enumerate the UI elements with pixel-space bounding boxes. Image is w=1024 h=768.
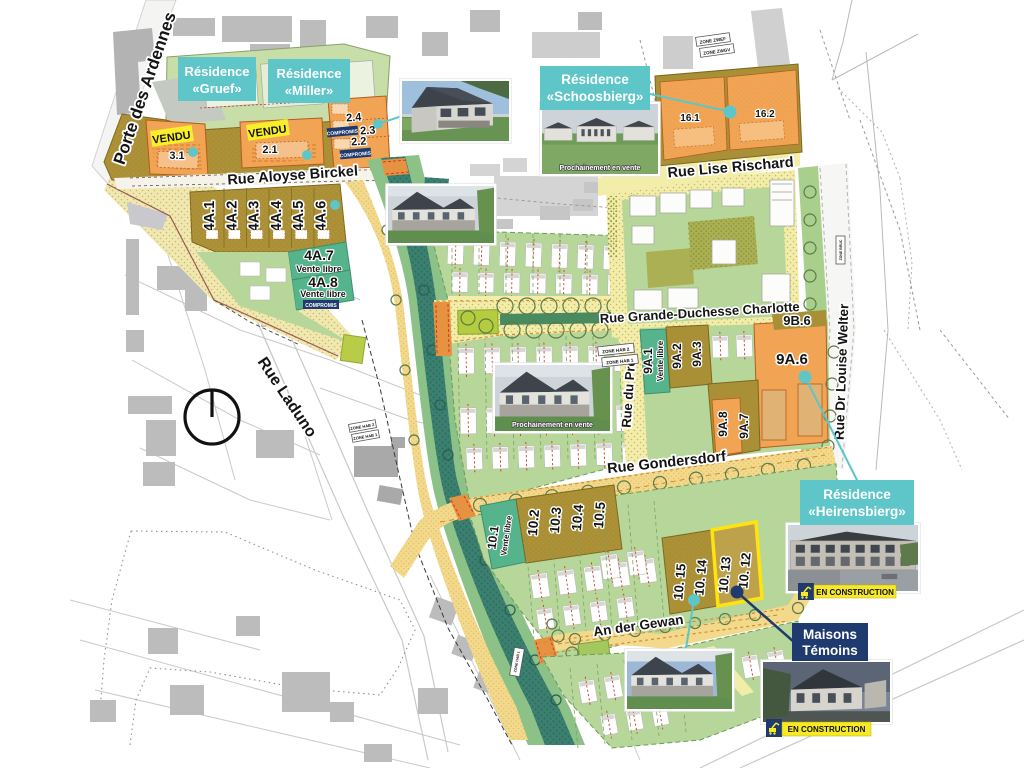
svg-text:4A.6: 4A.6 bbox=[314, 201, 330, 232]
svg-text:9A.6: 9A.6 bbox=[776, 351, 808, 368]
svg-text:9A.1: 9A.1 bbox=[641, 348, 655, 374]
svg-text:Vente libre: Vente libre bbox=[300, 289, 346, 299]
svg-text:9A.2: 9A.2 bbox=[670, 343, 684, 369]
svg-text:Résidence: Résidence bbox=[184, 64, 249, 79]
svg-text:16.1: 16.1 bbox=[680, 113, 700, 124]
svg-text:10. 13: 10. 13 bbox=[715, 556, 733, 593]
svg-text:4A.1: 4A.1 bbox=[202, 201, 218, 232]
svg-text:Vente libre: Vente libre bbox=[656, 340, 665, 381]
svg-text:10. 15: 10. 15 bbox=[670, 563, 688, 600]
svg-text:ZONE BRUC: ZONE BRUC bbox=[839, 239, 843, 260]
svg-text:2.1: 2.1 bbox=[262, 144, 277, 156]
svg-text:EN CONSTRUCTION: EN CONSTRUCTION bbox=[788, 725, 866, 734]
svg-text:«Schoosbierg»: «Schoosbierg» bbox=[547, 89, 644, 104]
svg-text:4A.4: 4A.4 bbox=[269, 201, 285, 232]
svg-text:4A.8: 4A.8 bbox=[308, 274, 338, 290]
svg-text:4A.2: 4A.2 bbox=[224, 201, 240, 232]
svg-text:«Gruef»: «Gruef» bbox=[192, 81, 241, 96]
svg-text:Prochainement en vente: Prochainement en vente bbox=[560, 165, 641, 172]
svg-text:Résidence: Résidence bbox=[561, 72, 629, 87]
svg-text:3.1: 3.1 bbox=[169, 150, 184, 162]
svg-text:«Miller»: «Miller» bbox=[285, 83, 333, 98]
svg-text:9A.3: 9A.3 bbox=[690, 341, 704, 367]
svg-text:Résidence: Résidence bbox=[823, 487, 891, 502]
svg-text:4A.7: 4A.7 bbox=[304, 247, 334, 263]
svg-text:Témoins: Témoins bbox=[802, 643, 858, 658]
svg-text:9A.7: 9A.7 bbox=[737, 413, 751, 439]
svg-text:16.2: 16.2 bbox=[755, 109, 775, 120]
svg-text:9A.8: 9A.8 bbox=[716, 411, 730, 437]
svg-text:Maisons: Maisons bbox=[803, 627, 857, 642]
svg-text:Prochainement en vente: Prochainement en vente bbox=[512, 422, 593, 429]
svg-text:4A.3: 4A.3 bbox=[247, 201, 263, 232]
svg-text:EN CONSTRUCTION: EN CONSTRUCTION bbox=[816, 588, 894, 597]
svg-text:10.3: 10.3 bbox=[547, 506, 564, 534]
svg-text:10.5: 10.5 bbox=[591, 501, 608, 529]
svg-text:4A.5: 4A.5 bbox=[291, 201, 307, 232]
svg-text:10. 14: 10. 14 bbox=[691, 558, 709, 596]
svg-text:10.2: 10.2 bbox=[525, 509, 542, 536]
svg-text:2.2: 2.2 bbox=[351, 135, 367, 148]
svg-text:«Heirensbierg»: «Heirensbierg» bbox=[808, 504, 906, 519]
svg-text:10. 12: 10. 12 bbox=[735, 552, 753, 589]
svg-text:Résidence: Résidence bbox=[276, 66, 341, 81]
svg-text:2.4: 2.4 bbox=[346, 111, 363, 124]
svg-text:9B.6: 9B.6 bbox=[783, 313, 810, 328]
svg-text:COMPROMIS: COMPROMIS bbox=[305, 303, 337, 309]
